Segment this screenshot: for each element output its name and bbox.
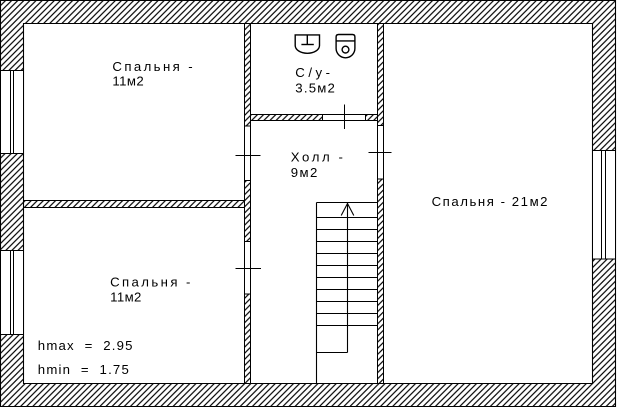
svg-text:11м2: 11м2: [110, 290, 142, 305]
svg-text:9м2: 9м2: [291, 165, 319, 180]
svg-text:hmax = 2.95: hmax = 2.95: [38, 338, 134, 353]
svg-text:Спальня - 21м2: Спальня - 21м2: [432, 194, 549, 209]
svg-text:С/у-: С/у-: [295, 65, 333, 80]
svg-text:Спальня -: Спальня -: [112, 59, 195, 74]
svg-text:Спальня -: Спальня -: [110, 275, 193, 290]
svg-text:hmin = 1.75: hmin = 1.75: [38, 362, 130, 377]
svg-text:11м2: 11м2: [112, 74, 144, 89]
svg-text:3.5м2: 3.5м2: [295, 80, 336, 95]
svg-text:Холл -: Холл -: [291, 150, 346, 165]
